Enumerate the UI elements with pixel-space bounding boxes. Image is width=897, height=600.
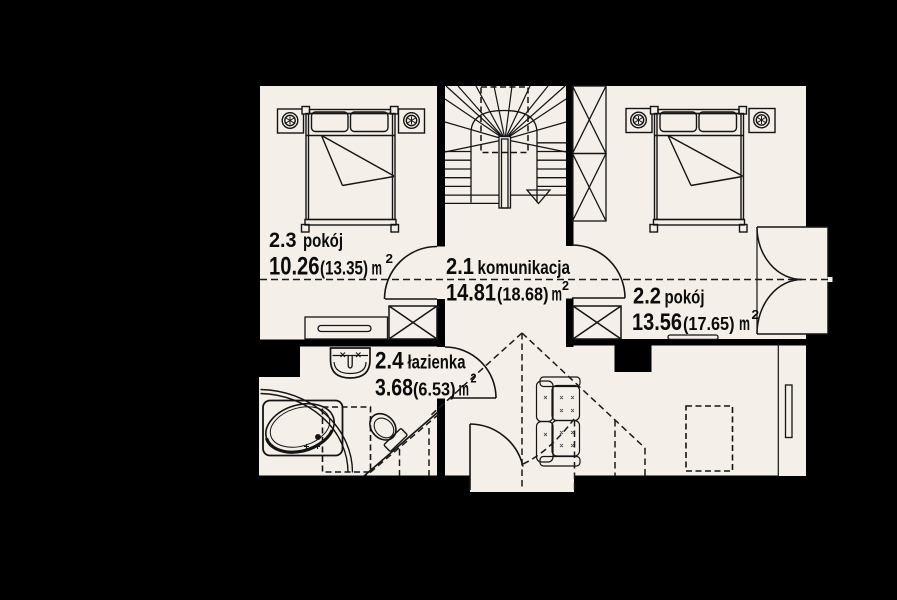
svg-text:2: 2 [471,371,477,386]
svg-text:(17.65): (17.65) [683,313,735,334]
svg-text:komunikacja: komunikacja [478,258,571,279]
svg-text:2.2: 2.2 [633,283,661,309]
svg-text:2.1: 2.1 [446,253,474,279]
svg-text:(13.35): (13.35) [320,259,368,280]
svg-text:pokój: pokój [303,231,343,252]
svg-text:(18.68): (18.68) [497,284,549,305]
svg-text:2: 2 [386,251,394,266]
svg-text:pokój: pokój [665,288,705,309]
svg-text:2.3: 2.3 [269,229,297,252]
svg-text:2.4: 2.4 [375,348,404,375]
svg-text:10.26: 10.26 [269,253,320,281]
svg-text:13.56: 13.56 [632,309,682,336]
svg-text:14.81: 14.81 [446,280,496,307]
svg-text:3.68: 3.68 [375,375,413,402]
svg-text:(6.53): (6.53) [413,379,456,400]
svg-text:2: 2 [562,278,569,293]
svg-text:2: 2 [752,307,760,322]
svg-text:m: m [739,314,750,335]
svg-text:m: m [372,259,383,280]
svg-text:łazienka: łazienka [408,353,466,374]
svg-text:m: m [552,285,563,306]
svg-text:m: m [459,380,470,401]
